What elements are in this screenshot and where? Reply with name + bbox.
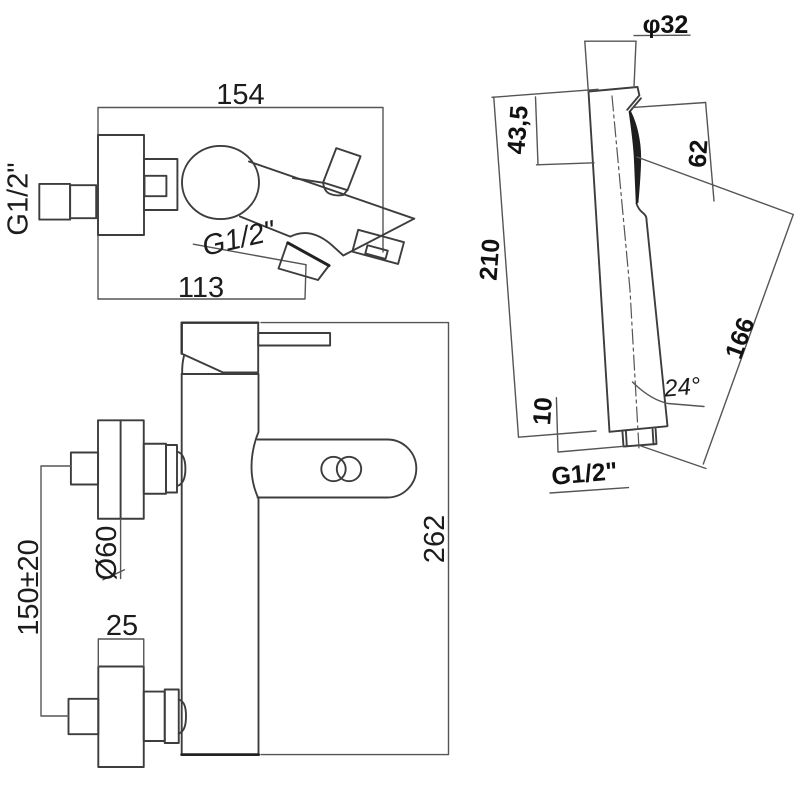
svg-text:62: 62 bbox=[684, 139, 714, 169]
svg-text:113: 113 bbox=[178, 272, 224, 304]
svg-text:10: 10 bbox=[528, 396, 558, 426]
svg-text:G1/2": G1/2" bbox=[550, 457, 618, 491]
svg-text:Ø60: Ø60 bbox=[91, 526, 123, 581]
svg-text:G1/2": G1/2" bbox=[199, 215, 279, 263]
svg-text:262: 262 bbox=[419, 515, 451, 563]
svg-text:210: 210 bbox=[475, 238, 506, 282]
svg-text:G1/2": G1/2" bbox=[3, 162, 35, 235]
svg-text:150±20: 150±20 bbox=[13, 539, 45, 636]
svg-text:24°: 24° bbox=[662, 372, 702, 402]
svg-text:154: 154 bbox=[216, 79, 264, 111]
svg-text:43,5: 43,5 bbox=[502, 105, 533, 156]
svg-text:φ32: φ32 bbox=[643, 11, 689, 39]
svg-text:25: 25 bbox=[106, 610, 138, 642]
